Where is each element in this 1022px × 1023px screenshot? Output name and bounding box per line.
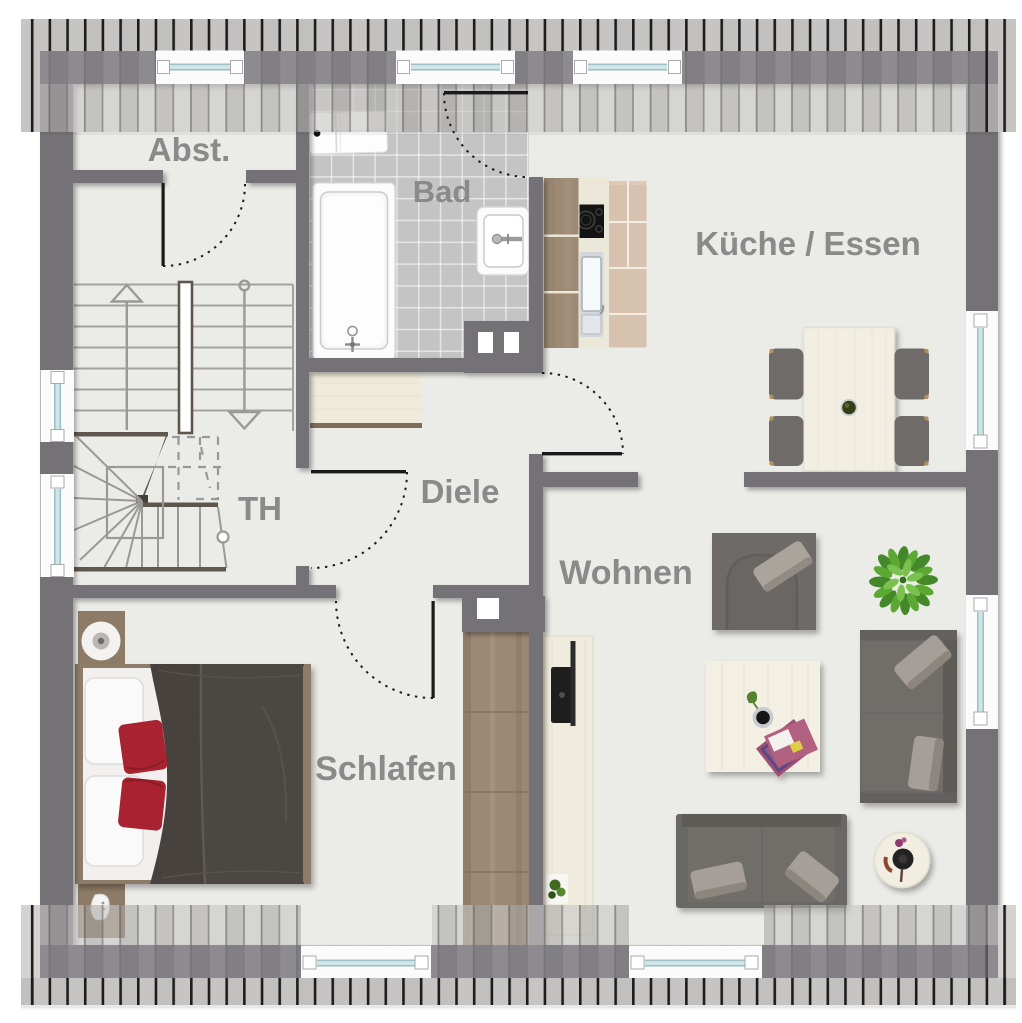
svg-text:Wohnen: Wohnen [559, 554, 692, 592]
svg-text:Abst.: Abst. [148, 131, 231, 168]
svg-text:Diele: Diele [421, 473, 500, 510]
svg-text:Bad: Bad [413, 174, 472, 209]
svg-text:Küche / Essen: Küche / Essen [695, 225, 921, 262]
svg-text:TH: TH [238, 490, 282, 527]
svg-text:Schlafen: Schlafen [315, 750, 457, 788]
